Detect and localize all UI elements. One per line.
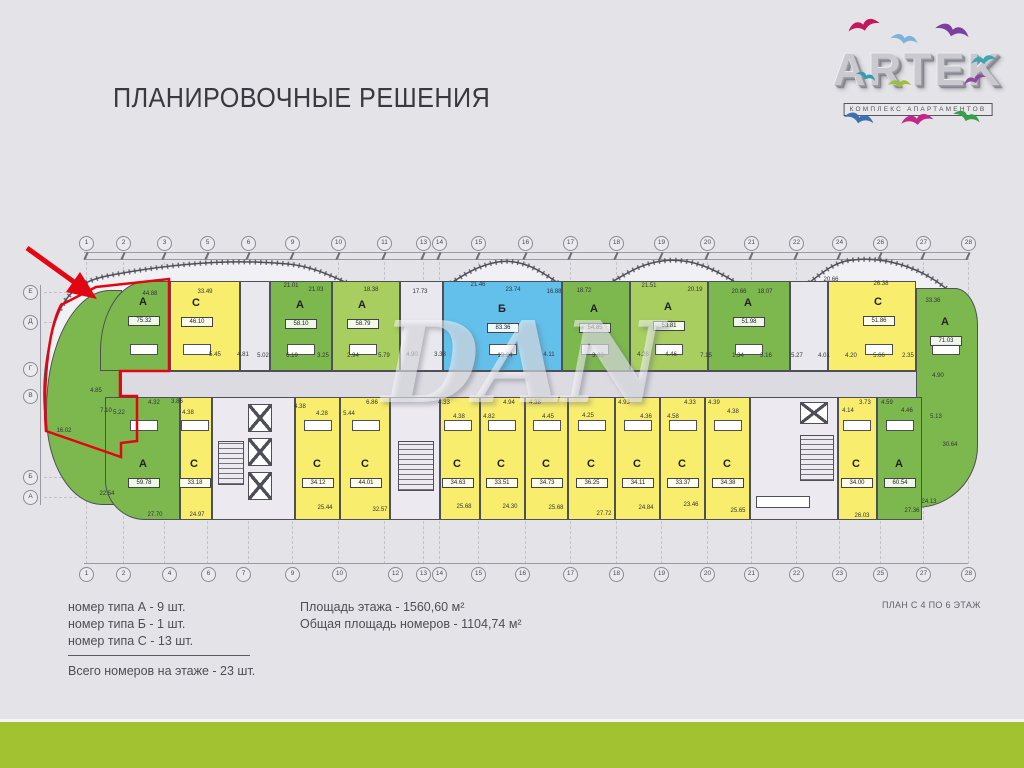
room-area-value: 2.35 bbox=[895, 353, 921, 360]
unit-area-badge: 33.51 bbox=[486, 478, 518, 488]
room-area-value: 5.13 bbox=[923, 414, 949, 421]
grid-bubble-left: Д bbox=[23, 315, 38, 330]
grid-bubble-bottom: 17 bbox=[563, 567, 578, 582]
logo-birds bbox=[820, 6, 1016, 142]
room-area-value: 5.27 bbox=[784, 353, 810, 360]
room-area-value: 22.54 bbox=[94, 491, 120, 498]
unit-area-badge: 53.81 bbox=[653, 321, 685, 331]
room-area-value: 32.57 bbox=[367, 507, 393, 514]
room-area-value: 4.93 bbox=[611, 400, 637, 407]
grid-bubble-top: 9 bbox=[285, 236, 300, 251]
grid-bubble-left: Б bbox=[23, 470, 38, 485]
room-area-value: 20.19 bbox=[682, 287, 708, 294]
bath-fixture bbox=[130, 420, 158, 431]
grid-bubble-top: 3 bbox=[157, 236, 172, 251]
artek-logo: ARTEK КОМПЛЕКС АПАРТАМЕНТОВ bbox=[820, 6, 1016, 142]
bird-icon bbox=[970, 54, 996, 66]
unit-area-badge: 59.78 bbox=[128, 478, 160, 488]
room-area-value: 4.46 bbox=[894, 408, 920, 415]
room-area-value: 3.16 bbox=[753, 353, 779, 360]
room-area-value: 4.25 bbox=[575, 413, 601, 420]
room-area-value: 17.73 bbox=[407, 289, 433, 296]
room-area-value: 4.58 bbox=[660, 414, 686, 421]
unit-area-badge: 58.10 bbox=[285, 319, 317, 329]
room-area-value: 4.82 bbox=[476, 414, 502, 421]
grid-bubble-bottom: 27 bbox=[916, 567, 931, 582]
unit-area-badge: 58.79 bbox=[347, 319, 379, 329]
room-area-value: 4.90 bbox=[925, 373, 951, 380]
bird-icon bbox=[890, 33, 919, 46]
bath-fixture bbox=[444, 420, 472, 431]
room-area-value: 4.33 bbox=[431, 400, 457, 407]
stair-hatch bbox=[800, 435, 834, 481]
unit-area-badge: 34.00 bbox=[841, 478, 873, 488]
room-area-value: 4.33 bbox=[677, 400, 703, 407]
room-area-value: 23.46 bbox=[678, 502, 704, 509]
room-area-value: 4.36 bbox=[633, 414, 659, 421]
room-area-value: 4.28 bbox=[309, 411, 335, 418]
bath-fixture bbox=[352, 420, 380, 431]
unit-area-badge: 71.03 bbox=[930, 336, 962, 346]
unit-label: С bbox=[447, 459, 467, 470]
room-area-value: 27.70 bbox=[142, 512, 168, 519]
elevator-box bbox=[248, 438, 272, 466]
unit-label: С bbox=[186, 298, 206, 309]
unit-label: С bbox=[355, 459, 375, 470]
room-area-value: 6.86 bbox=[359, 400, 385, 407]
unit-area-badge: 33.37 bbox=[667, 478, 699, 488]
bath-fixture bbox=[669, 420, 697, 431]
grid-bubble-top: 24 bbox=[832, 236, 847, 251]
bath-fixture bbox=[181, 420, 209, 431]
room-area-value: 21.03 bbox=[303, 287, 329, 294]
room-area-value: 13.24 bbox=[492, 353, 518, 360]
unit-label: С bbox=[627, 459, 647, 470]
room-area-value: 5.44 bbox=[336, 411, 362, 418]
unit-area-badge: 33.18 bbox=[179, 478, 211, 488]
room-area-value: 5.45 bbox=[202, 352, 228, 359]
grid-bubble-top: 19 bbox=[654, 236, 669, 251]
room-area-value: 21.01 bbox=[278, 283, 304, 290]
room-area-value: 21.46 bbox=[465, 282, 491, 289]
room-area-value: 4.38 bbox=[446, 414, 472, 421]
bird-icon bbox=[855, 70, 877, 83]
room-area-value: 4.94 bbox=[496, 400, 522, 407]
grid-bubble-bottom: 28 bbox=[961, 567, 976, 582]
bath-fixture bbox=[714, 420, 742, 431]
unit-area-badge: 54.85 bbox=[579, 323, 611, 333]
unit-label: С bbox=[672, 459, 692, 470]
room-area-value: 24.97 bbox=[184, 512, 210, 519]
unit-label: А bbox=[352, 300, 372, 311]
room-area-value: 33.49 bbox=[192, 289, 218, 296]
room-area-value: 30.64 bbox=[937, 442, 963, 449]
bath-fixture bbox=[624, 420, 652, 431]
room-area-value: 44.88 bbox=[137, 291, 163, 298]
room-area-value: 26.38 bbox=[868, 281, 894, 288]
unit-label: С bbox=[184, 459, 204, 470]
room-area-value: 2.94 bbox=[340, 353, 366, 360]
grid-bubble-top: 21 bbox=[744, 236, 759, 251]
room-area-value: 25.44 bbox=[312, 505, 338, 512]
unit-label: А bbox=[738, 298, 758, 309]
unit-area-badge: 46.10 bbox=[181, 317, 213, 327]
unit-area-badge: 34.12 bbox=[302, 478, 334, 488]
bath-fixture bbox=[843, 420, 871, 431]
room-area-value: 4.20 bbox=[838, 353, 864, 360]
room-area-value: 24.13 bbox=[916, 499, 942, 506]
grid-bubble-bottom: 12 bbox=[388, 567, 403, 582]
room-area-value: 4.38 bbox=[720, 409, 746, 416]
grid-bubble-bottom: 20 bbox=[700, 567, 715, 582]
grid-bubble-bottom: 4 bbox=[162, 567, 177, 582]
room-area-value: 4.11 bbox=[536, 352, 562, 359]
grid-bubble-top: 11 bbox=[377, 236, 392, 251]
bird-icon bbox=[847, 17, 881, 35]
room-area-value: 26.03 bbox=[849, 513, 875, 520]
room-area-value: 24.84 bbox=[633, 505, 659, 512]
unit-label: А bbox=[658, 302, 678, 313]
room-area-value: 4.14 bbox=[835, 408, 861, 415]
unit-area-badge: 75.32 bbox=[128, 316, 160, 326]
room-area-value: 5.02 bbox=[250, 353, 276, 360]
room-area-value: 27.72 bbox=[591, 511, 617, 518]
grid-bubble-top: 28 bbox=[961, 236, 976, 251]
grid-bubble-bottom: 22 bbox=[789, 567, 804, 582]
unit-label: С bbox=[717, 459, 737, 470]
room-area-value: 4.38 bbox=[522, 400, 548, 407]
grid-bubble-bottom: 23 bbox=[832, 567, 847, 582]
unit-area-badge: 51.98 bbox=[733, 317, 765, 327]
unit-label: А bbox=[584, 304, 604, 315]
unit-label: С bbox=[307, 459, 327, 470]
grid-bubble-bottom: 15 bbox=[471, 567, 486, 582]
room-area-value: 4.38 bbox=[287, 404, 313, 411]
unit-area-badge: 60.54 bbox=[884, 478, 916, 488]
room-area-value: 3.38 bbox=[427, 352, 453, 359]
bath-fixture bbox=[130, 344, 158, 355]
unit-area-badge: 34.73 bbox=[531, 478, 563, 488]
grid-bubble-bottom: 25 bbox=[873, 567, 888, 582]
grid-bubble-bottom: 16 bbox=[515, 567, 530, 582]
room-area-value: 4.85 bbox=[83, 388, 109, 395]
grid-bubble-bottom: 9 bbox=[285, 567, 300, 582]
room-area-value: 4.38 bbox=[175, 410, 201, 417]
grid-bubble-top: 16 bbox=[518, 236, 533, 251]
room-area-value: 5.22 bbox=[106, 410, 132, 417]
grid-bubble-bottom: 21 bbox=[744, 567, 759, 582]
grid-bubble-top: 27 bbox=[916, 236, 931, 251]
grid-bubble-top: 26 bbox=[873, 236, 888, 251]
grid-bubble-left: А bbox=[23, 490, 38, 505]
unit-label: А bbox=[133, 459, 153, 470]
grid-bubble-top: 20 bbox=[700, 236, 715, 251]
room-area-value: 3.83 bbox=[585, 353, 611, 360]
room-area-value: 25.68 bbox=[543, 505, 569, 512]
bird-icon bbox=[963, 72, 987, 87]
unit-area-badge: 51.86 bbox=[863, 316, 895, 326]
grid-bubble-top: 18 bbox=[609, 236, 624, 251]
room-area-value: 33.36 bbox=[920, 298, 946, 305]
grid-bubble-bottom: 6 bbox=[201, 567, 216, 582]
unit-label: С bbox=[846, 459, 866, 470]
grid-bubble-bottom: 2 bbox=[116, 567, 131, 582]
corridor bbox=[118, 370, 918, 400]
room-area-value: 4.90 bbox=[399, 352, 425, 359]
unit-label: С bbox=[491, 459, 511, 470]
elevator-box bbox=[248, 404, 272, 432]
room-area-value: 25.68 bbox=[451, 504, 477, 511]
unit-area-badge: 34.11 bbox=[622, 478, 654, 488]
room-area-value: 4.01 bbox=[811, 353, 837, 360]
unit-area-badge: 83.36 bbox=[487, 323, 519, 333]
room-area-value: 23.74 bbox=[500, 287, 526, 294]
grid-bubble-top: 14 bbox=[432, 236, 447, 251]
unit-area-badge: 34.38 bbox=[712, 478, 744, 488]
grid-bubble-top: 13 bbox=[416, 236, 431, 251]
room-area-value: 21.51 bbox=[636, 283, 662, 290]
room-area-value: 3.25 bbox=[310, 353, 336, 360]
grid-bubble-top: 5 bbox=[200, 236, 215, 251]
room-area-value: 5.79 bbox=[371, 353, 397, 360]
unit-label: А bbox=[133, 297, 153, 308]
room-area-value: 7.15 bbox=[693, 353, 719, 360]
room-area-value: 3.86 bbox=[164, 399, 190, 406]
grid-bubble-top: 2 bbox=[116, 236, 131, 251]
elevator-box bbox=[248, 472, 272, 500]
grid-bubble-top: 1 bbox=[79, 236, 94, 251]
grid-bubble-bottom: 18 bbox=[609, 567, 624, 582]
grid-bubble-top: 10 bbox=[331, 236, 346, 251]
grid-bubble-top: 15 bbox=[471, 236, 486, 251]
elevator-box bbox=[800, 402, 828, 424]
room-area-value: 4.59 bbox=[874, 400, 900, 407]
grid-bubble-bottom: 19 bbox=[654, 567, 669, 582]
room-area-value: 4.45 bbox=[535, 414, 561, 421]
unit-area-badge: 36.25 bbox=[576, 478, 608, 488]
bath-fixture bbox=[304, 420, 332, 431]
unit-label: А bbox=[935, 317, 955, 328]
grid-bubble-bottom: 10 bbox=[332, 567, 347, 582]
grid-bubble-bottom: 1 bbox=[79, 567, 94, 582]
grid-bubble-bottom: 7 bbox=[236, 567, 251, 582]
room-area-value: 16.02 bbox=[51, 428, 77, 435]
grid-bubble-top: 22 bbox=[789, 236, 804, 251]
room-area-value: 25.65 bbox=[725, 508, 751, 515]
unit-label: А bbox=[290, 300, 310, 311]
slide: ПЛАНИРОВОЧНЫЕ РЕШЕНИЯ ARTEK КОМПЛЕКС АПА… bbox=[0, 0, 1024, 768]
bath-fixture bbox=[578, 420, 606, 431]
grid-bubble-left: Е bbox=[23, 285, 38, 300]
bath-fixture bbox=[488, 420, 516, 431]
unit-label: Б bbox=[492, 304, 512, 315]
stair-hatch bbox=[218, 441, 244, 485]
grid-bubble-bottom: 14 bbox=[432, 567, 447, 582]
bath-fixture bbox=[886, 420, 914, 431]
grid-bubble-top: 17 bbox=[563, 236, 578, 251]
unit-area-badge: 34.63 bbox=[442, 478, 474, 488]
room-area-value: 4.26 bbox=[630, 352, 656, 359]
room-area-value: 4.39 bbox=[701, 400, 727, 407]
grid-bubble-top: 6 bbox=[241, 236, 256, 251]
room-area-value: 27.36 bbox=[899, 508, 925, 515]
room-area-value: 5.66 bbox=[866, 353, 892, 360]
bird-icon bbox=[934, 21, 970, 40]
room-area-value: 20.66 bbox=[818, 277, 844, 284]
unit-label: С bbox=[581, 459, 601, 470]
room-area-value: 18.72 bbox=[571, 288, 597, 295]
room-area-value: 18.38 bbox=[358, 287, 384, 294]
room-area-value: 18.07 bbox=[752, 289, 778, 296]
bird-icon bbox=[900, 113, 933, 128]
bird-icon bbox=[843, 111, 874, 126]
room-area-value: 4.46 bbox=[658, 352, 684, 359]
unit-label: С bbox=[536, 459, 556, 470]
unit-area-badge: 44.01 bbox=[350, 478, 382, 488]
room-area-value: 16.88 bbox=[541, 289, 567, 296]
unit-label: А bbox=[889, 459, 909, 470]
grid-bubble-bottom: 13 bbox=[416, 567, 431, 582]
room-area-value: 1.34 bbox=[725, 353, 751, 360]
unit-label: С bbox=[868, 297, 888, 308]
lobby-strip bbox=[756, 496, 810, 508]
room-area-value: 20.66 bbox=[726, 289, 752, 296]
room-area-value: 6.19 bbox=[279, 353, 305, 360]
bath-fixture bbox=[533, 420, 561, 431]
grid-bubble-left: В bbox=[23, 389, 38, 404]
grid-bubble-left: Г bbox=[23, 362, 38, 377]
room-area-value: 24.30 bbox=[497, 504, 523, 511]
stair-hatch bbox=[398, 441, 434, 491]
bird-icon bbox=[888, 80, 911, 87]
bird-icon bbox=[952, 109, 981, 126]
